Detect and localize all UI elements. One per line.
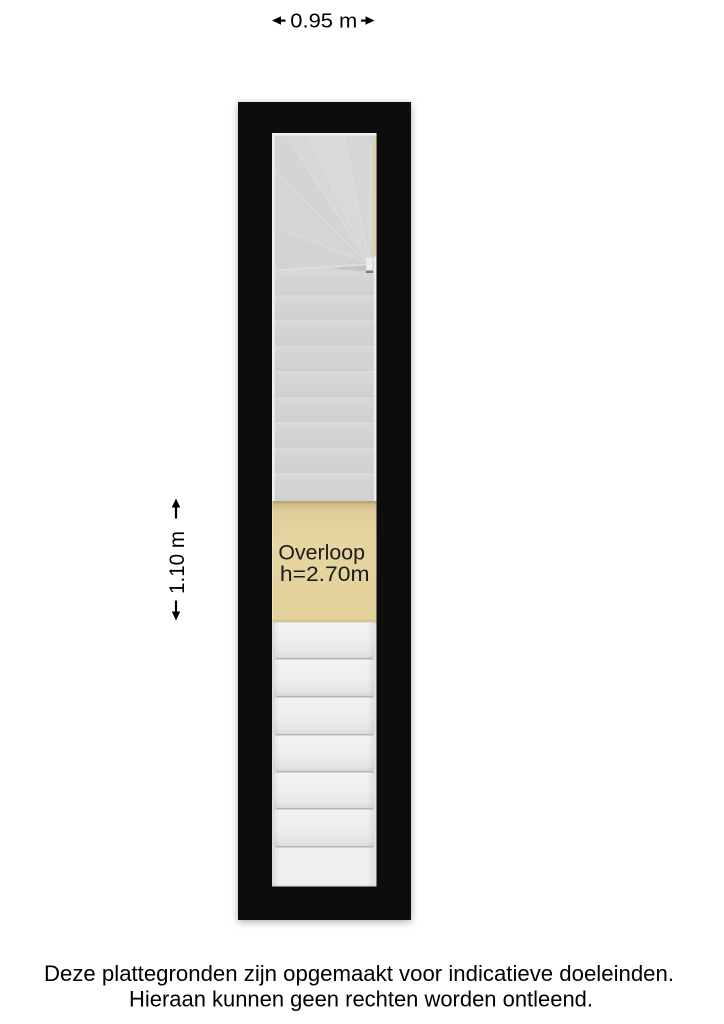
- svg-text:h=2.70m: h=2.70m: [280, 563, 370, 586]
- svg-text:Overloop: Overloop: [278, 542, 365, 565]
- svg-text:0.95 m: 0.95 m: [290, 11, 357, 33]
- svg-text:1.10 m: 1.10 m: [166, 531, 189, 594]
- svg-text:Hieraan kunnen geen rechten wo: Hieraan kunnen geen rechten worden ontle…: [129, 987, 593, 1012]
- svg-text:Deze plattegronden zijn opgema: Deze plattegronden zijn opgemaakt voor i…: [44, 961, 674, 986]
